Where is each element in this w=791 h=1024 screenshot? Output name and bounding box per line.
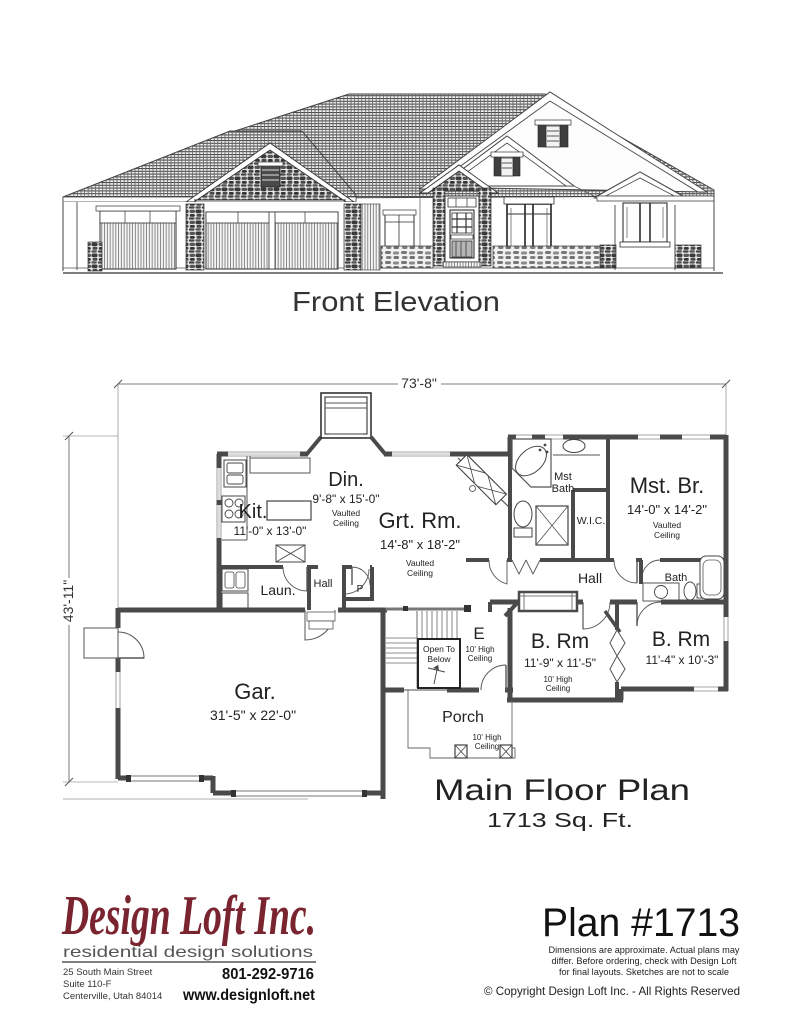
svg-text:Dimensions are approximate. A: Dimensions are approximate. Actual plans… xyxy=(549,945,741,955)
svg-text:Suite 110-F: Suite 110-F xyxy=(63,979,112,990)
svg-text:Vaulted: Vaulted xyxy=(653,520,681,530)
svg-text:14'-8" x 18'-2": 14'-8" x 18'-2" xyxy=(380,537,460,552)
svg-text:Mst. Br.: Mst. Br. xyxy=(630,473,705,498)
svg-text:Porch: Porch xyxy=(442,709,484,726)
svg-text:Ceiling: Ceiling xyxy=(654,530,680,540)
svg-text:10' High: 10' High xyxy=(472,733,501,742)
svg-text:© Copyright Design Loft Inc.: © Copyright Design Loft Inc. - All Right… xyxy=(484,984,740,998)
svg-text:14'-0" x 14'-2": 14'-0" x 14'-2" xyxy=(627,502,707,517)
svg-text:25 South Main Street: 25 South Main Street xyxy=(63,967,153,978)
svg-text:www.designloft.net: www.designloft.net xyxy=(182,987,316,1004)
svg-text:43'-11": 43'-11" xyxy=(60,580,76,622)
svg-text:10' High: 10' High xyxy=(465,645,494,654)
svg-text:1713 Sq. Ft.: 1713 Sq. Ft. xyxy=(487,810,633,832)
svg-text:Ceiling: Ceiling xyxy=(468,654,492,663)
svg-text:differ. Before ordering, chec: differ. Before ordering, check with Desi… xyxy=(552,956,738,966)
svg-text:for final layouts. Sketches a: for final layouts. Sketches are not to s… xyxy=(559,967,729,977)
svg-text:31'-5" x 22'-0": 31'-5" x 22'-0" xyxy=(210,707,296,723)
svg-text:73'-8": 73'-8" xyxy=(401,375,437,391)
svg-text:Open To: Open To xyxy=(423,644,455,654)
svg-text:Din.: Din. xyxy=(328,469,364,491)
svg-text:Kit.: Kit. xyxy=(239,501,268,523)
svg-text:Front Elevation: Front Elevation xyxy=(292,286,500,317)
svg-text:Vaulted: Vaulted xyxy=(332,508,360,518)
svg-text:11'-0" x 13'-0": 11'-0" x 13'-0" xyxy=(234,524,307,538)
svg-text:Vaulted: Vaulted xyxy=(406,558,434,568)
svg-text:Bath: Bath xyxy=(552,483,575,495)
svg-text:11'-9" x 11'-5": 11'-9" x 11'-5" xyxy=(524,656,596,670)
svg-text:Ceiling: Ceiling xyxy=(475,742,499,751)
svg-text:Ceiling: Ceiling xyxy=(333,518,359,528)
svg-text:B. Rm: B. Rm xyxy=(652,628,710,651)
svg-text:Ceiling: Ceiling xyxy=(546,684,570,693)
svg-text:B. Rm: B. Rm xyxy=(531,630,589,653)
svg-text:Ceiling: Ceiling xyxy=(407,568,433,578)
svg-text:Main Floor Plan: Main Floor Plan xyxy=(434,774,690,807)
svg-text:Laun.: Laun. xyxy=(260,582,295,598)
svg-text:P: P xyxy=(357,584,364,595)
svg-text:Hall: Hall xyxy=(314,578,333,590)
svg-text:Design Loft Inc.: Design Loft Inc. xyxy=(61,885,316,947)
svg-text:801-292-9716: 801-292-9716 xyxy=(222,966,314,983)
svg-text:Mst: Mst xyxy=(554,471,572,483)
svg-text:Grt. Rm.: Grt. Rm. xyxy=(378,508,461,533)
svg-text:Below: Below xyxy=(427,654,451,664)
svg-text:Gar.: Gar. xyxy=(234,679,276,704)
svg-text:Hall: Hall xyxy=(578,570,602,586)
svg-text:10' High: 10' High xyxy=(543,675,572,684)
svg-text:9'-8" x 15'-0": 9'-8" x 15'-0" xyxy=(312,492,379,506)
svg-text:Bath: Bath xyxy=(665,572,688,584)
svg-text:residential design solutions: residential design solutions xyxy=(63,944,313,961)
svg-text:Plan #1713: Plan #1713 xyxy=(542,901,740,945)
svg-text:W.I.C.: W.I.C. xyxy=(577,515,606,527)
svg-text:Centerville, Utah 84014: Centerville, Utah 84014 xyxy=(63,991,162,1002)
svg-text:11'-4" x 10'-3": 11'-4" x 10'-3" xyxy=(646,653,719,667)
svg-text:E: E xyxy=(473,624,484,643)
